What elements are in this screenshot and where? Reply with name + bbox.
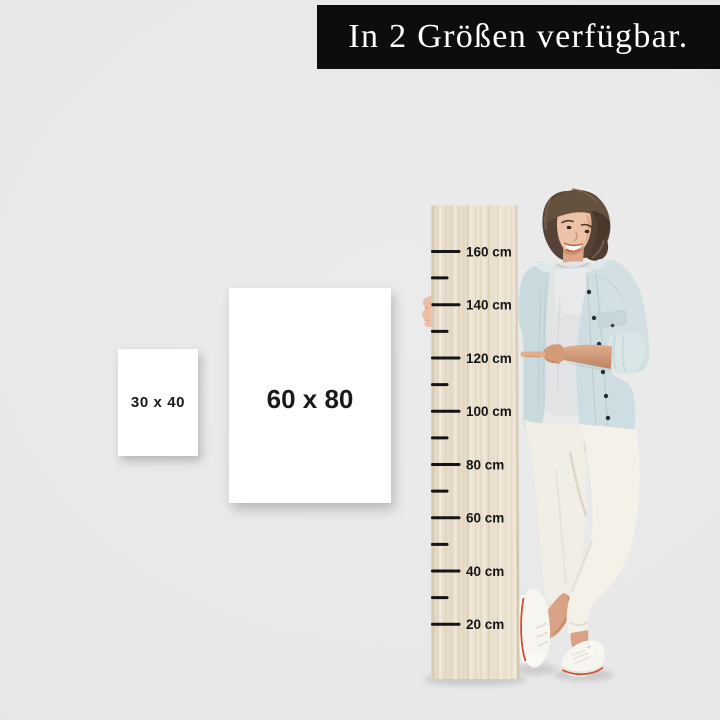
svg-text:160 cm: 160 cm (466, 244, 512, 259)
svg-text:120 cm: 120 cm (466, 351, 512, 366)
svg-text:60 cm: 60 cm (466, 511, 504, 526)
svg-text:40 cm: 40 cm (466, 564, 504, 579)
svg-text:140 cm: 140 cm (466, 298, 512, 313)
svg-text:100 cm: 100 cm (466, 404, 512, 419)
svg-text:80 cm: 80 cm (466, 457, 504, 472)
svg-text:20 cm: 20 cm (466, 617, 504, 632)
